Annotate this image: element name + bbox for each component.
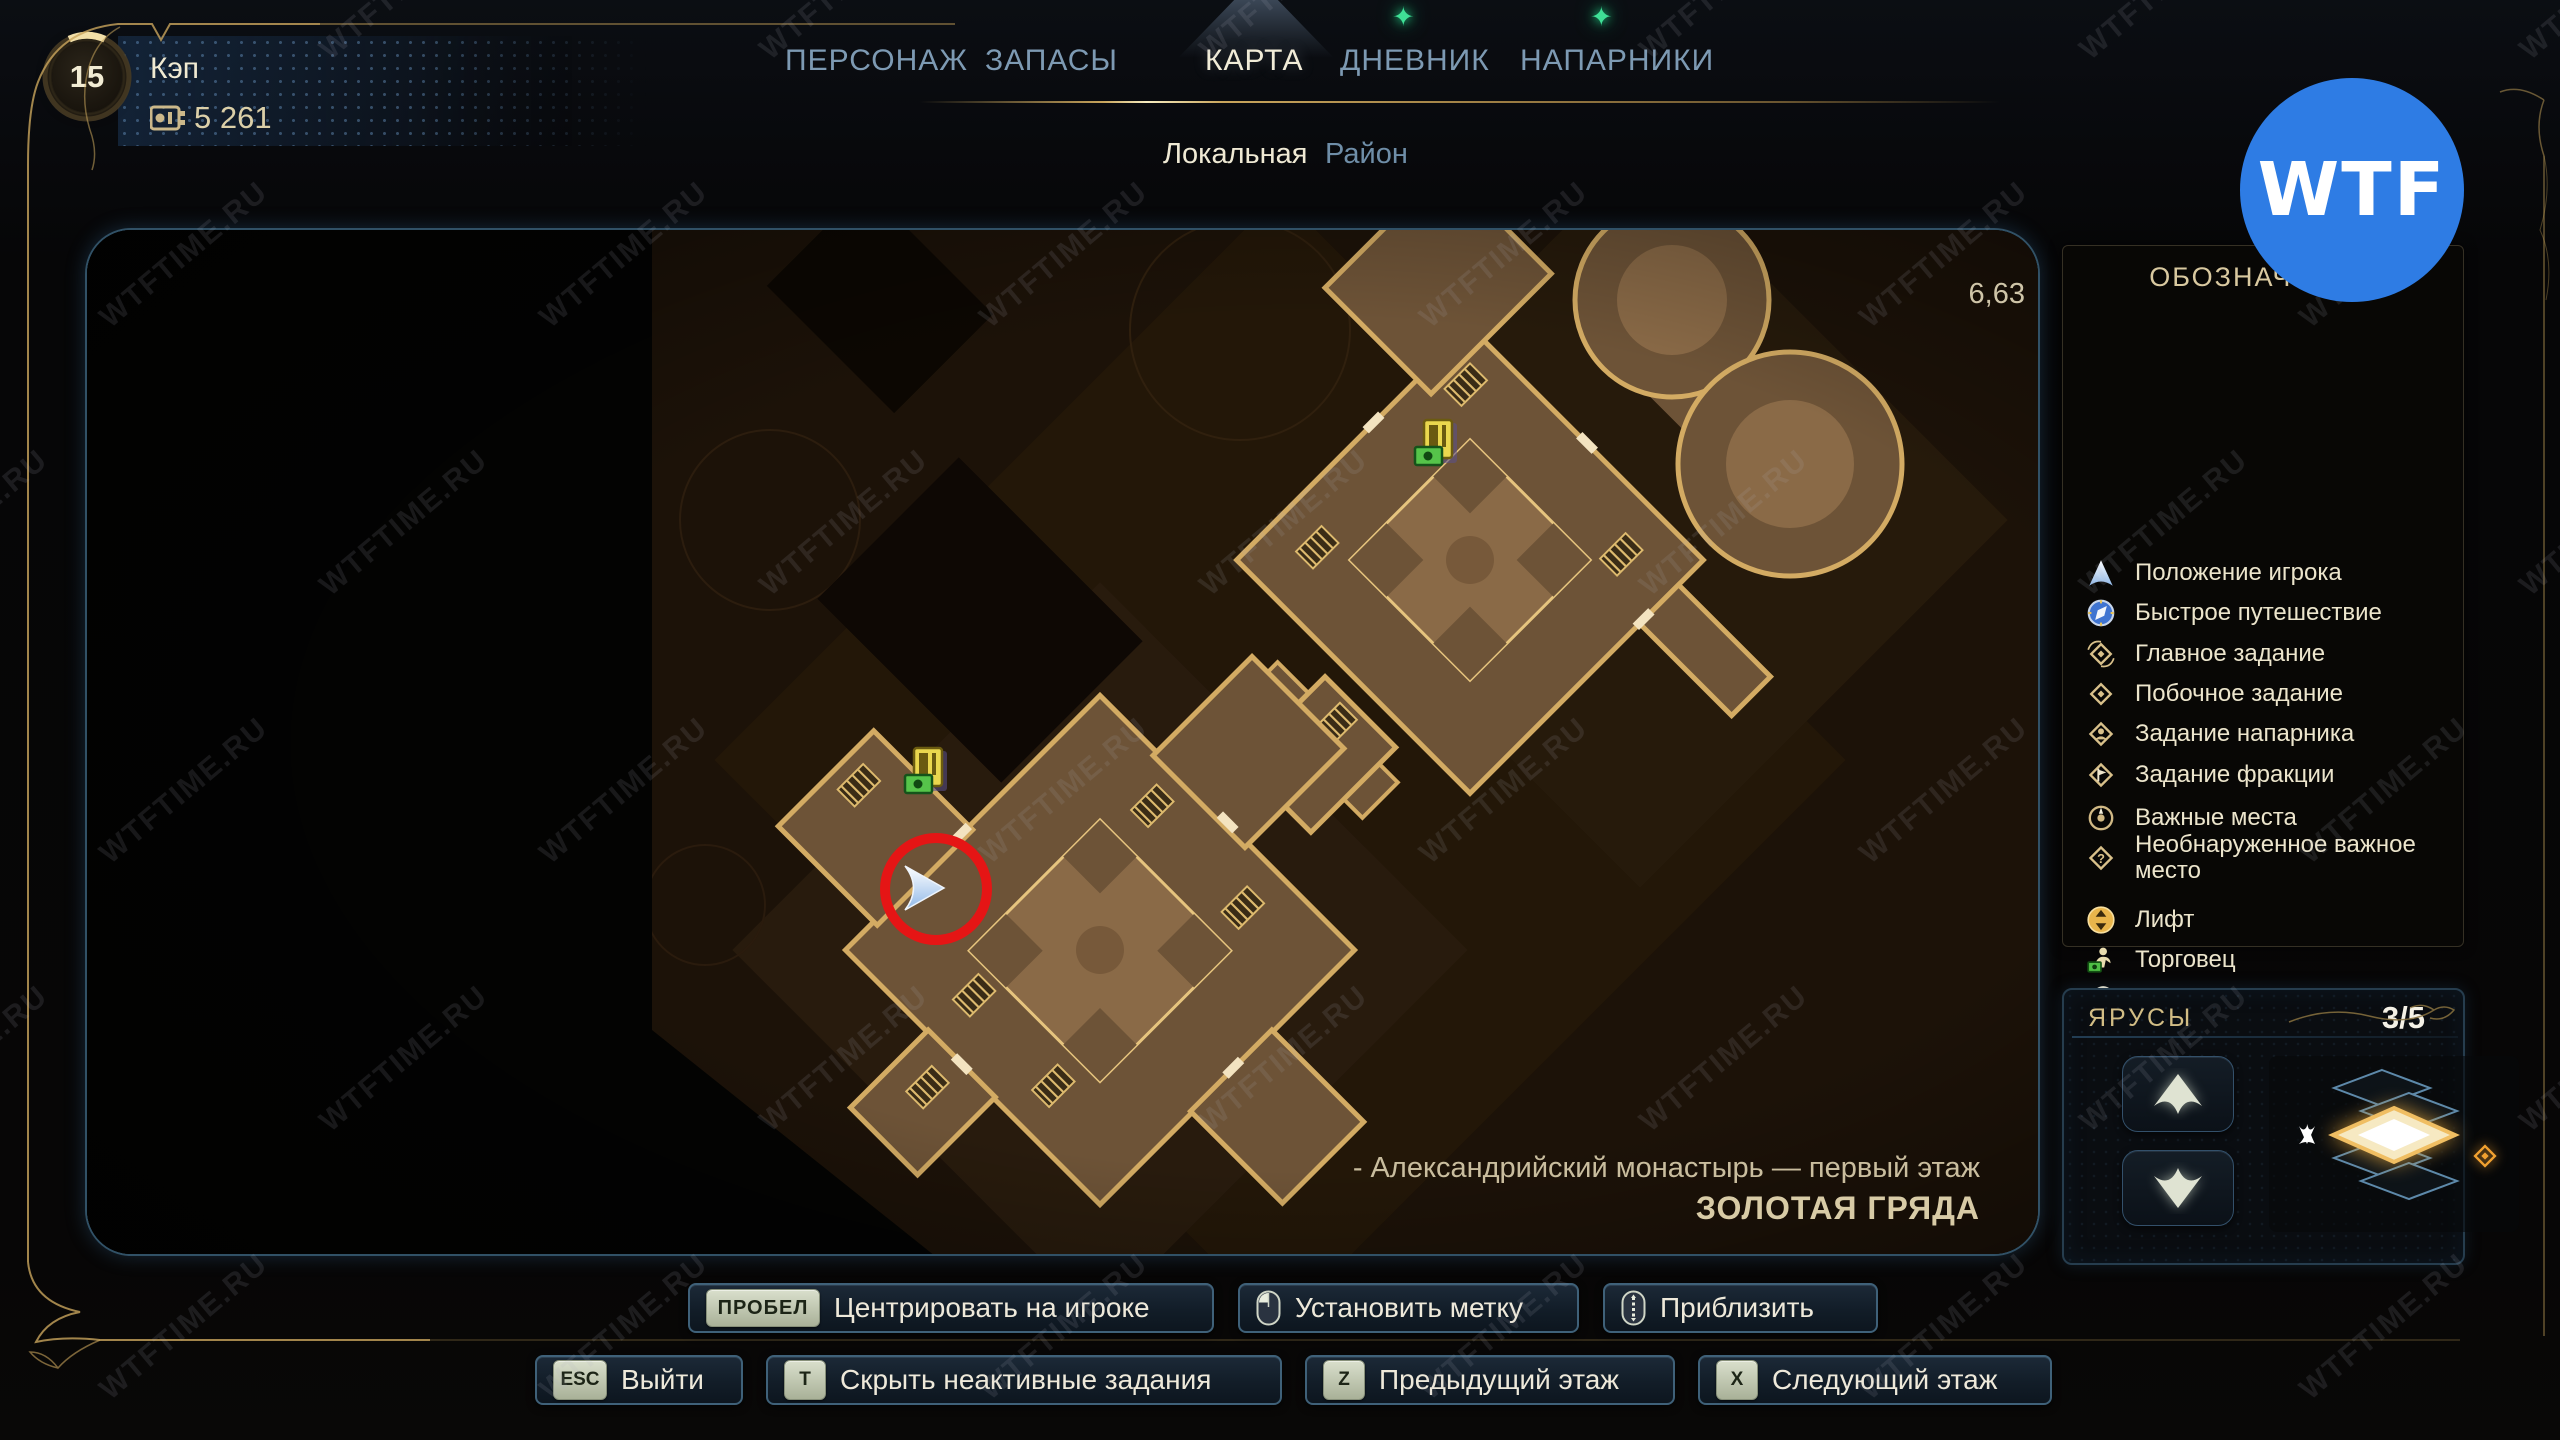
watermark: WTFTIME.RU [2513,979,2560,1139]
spacebar-keycap: ПРОБЕЛ [706,1289,820,1327]
tab-companions[interactable]: НАПАРНИКИ [1520,44,1714,78]
faction-quest-icon [2085,759,2117,791]
player-level-badge: 15 [52,42,122,112]
side-quest-icon [2085,678,2117,710]
floor-stack[interactable] [2269,1056,2519,1232]
map-location-name: - Александрийский монастырь — первый эта… [1000,1152,1980,1185]
subtab-local-map[interactable]: Локальная [1163,138,1308,171]
floors-flourish-ornament [2284,996,2459,1032]
floor-stack-diagram [2269,1056,2519,1232]
fast-travel-icon [2085,597,2117,629]
hide-inactive-quests-button[interactable]: T Скрыть неактивные задания [766,1355,1282,1405]
svg-text:?: ? [2097,851,2105,866]
map-region-name: ЗОЛОТАЯ ГРЯДА [1000,1190,1980,1227]
tab-inventory[interactable]: ЗАПАСЫ [985,44,1118,78]
set-marker-button[interactable]: Установить метку [1238,1283,1579,1333]
companions-notification-icon: ✦ [1590,2,1613,33]
legend-item: Задание напарника [2085,717,2435,751]
journal-notification-icon: ✦ [1392,2,1415,33]
legend-item: Быстрое путешествие [2085,596,2435,630]
watermark: WTFTIME.RU [93,1247,274,1407]
floor-quest-marker-icon [2475,1146,2495,1166]
floors-title: ЯРУСЫ [2088,1004,2193,1033]
companion-quest-icon [2085,718,2117,750]
watermark: WTFTIME.RU [2293,1247,2474,1407]
z-keycap: Z [1323,1360,1365,1400]
map-viewport[interactable] [85,228,2040,1256]
legend-item: Главное задание [2085,637,2435,671]
tab-underline [920,101,2000,103]
legend-item: Торговец [2085,943,2435,977]
floors-panel: ЯРУСЫ 3/5 [2062,988,2465,1265]
floor-up-button[interactable] [2122,1056,2234,1132]
x-keycap: X [1716,1360,1758,1400]
mouse-left-click-icon [1256,1290,1281,1326]
currency-display: 5 261 [150,100,272,136]
legend-item: Задание фракции [2085,758,2435,792]
watermark: WTFTIME.RU [2513,0,2560,67]
previous-floor-button[interactable]: Z Предыдущий этаж [1305,1355,1675,1405]
next-floor-button[interactable]: X Следующий этаж [1698,1355,2052,1405]
bits-currency-icon [150,104,186,132]
elevator-icon [2085,904,2117,936]
legend-panel: ОБОЗНАЧЕНИЯ Положение игрока Быстрое пут… [2062,245,2464,947]
important-place-icon [2085,802,2117,834]
player-level: 15 [70,59,104,95]
legend-item: ? Необнаруженное важное место [2085,841,2435,875]
undiscovered-place-icon: ? [2085,842,2117,874]
merchant-icon [2085,944,2117,976]
mouse-wheel-icon [1621,1290,1646,1326]
map-coordinates: 6,63 [1905,278,2025,311]
game-screen: 15 Кэп 5 261 ПЕРСОНАЖ ЗАПАСЫ КАРТА ДНЕВН… [0,0,2560,1440]
player-name: Кэп [150,52,199,86]
watermark: WTFTIME.RU [2073,0,2254,67]
legend-item: Важные места [2085,801,2435,835]
legend-item: Положение игрока [2085,556,2435,590]
map-canvas [85,228,2040,1256]
tab-character[interactable]: ПЕРСОНАЖ [785,44,968,78]
floors-separator [2072,1036,2458,1038]
legend-item: Побочное задание [2085,677,2435,711]
currency-amount: 5 261 [194,100,272,136]
arrow-up-icon [2146,1068,2210,1120]
wtf-watermark-logo: WTF [2240,78,2464,302]
legend-item: Лифт [2085,903,2435,937]
watermark: WTFTIME.RU [2513,443,2560,603]
t-keycap: T [784,1360,826,1400]
center-on-player-button[interactable]: ПРОБЕЛ Центрировать на игроке [688,1283,1214,1333]
main-quest-icon [2085,638,2117,670]
watermark: WTFTIME.RU [0,0,55,67]
subtab-region-map[interactable]: Район [1325,138,1408,171]
floor-down-button[interactable] [2122,1150,2234,1226]
exit-button[interactable]: ESC Выйти [535,1355,743,1405]
arrow-down-icon [2146,1162,2210,1214]
watermark: WTFTIME.RU [0,979,55,1139]
zoom-in-button[interactable]: Приблизить [1603,1283,1878,1333]
esc-keycap: ESC [553,1360,607,1400]
player-position-icon [2085,557,2117,589]
tab-journal[interactable]: ДНЕВНИК [1340,44,1490,78]
tab-map[interactable]: КАРТА [1205,44,1304,78]
watermark: WTFTIME.RU [0,443,55,603]
